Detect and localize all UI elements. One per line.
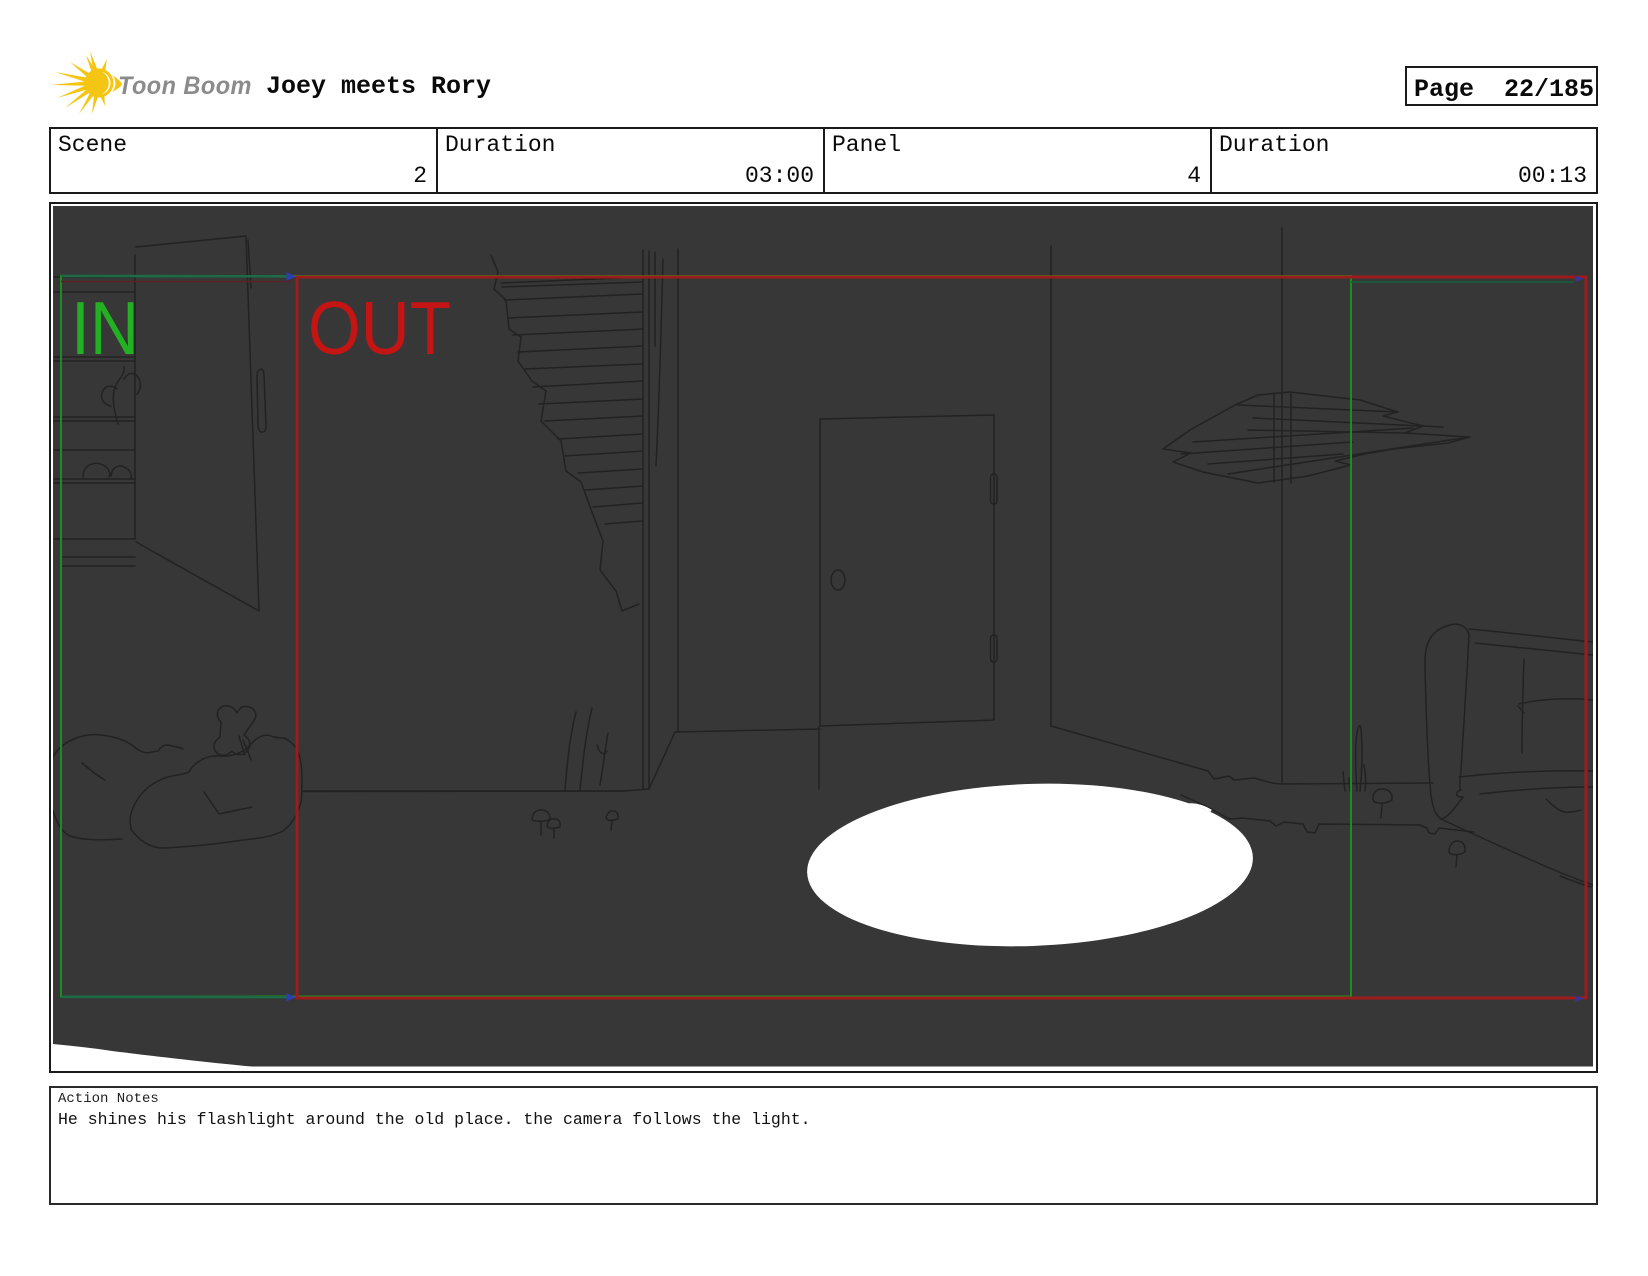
svg-text:IN: IN xyxy=(71,286,139,370)
svg-text:OUT: OUT xyxy=(308,286,451,370)
